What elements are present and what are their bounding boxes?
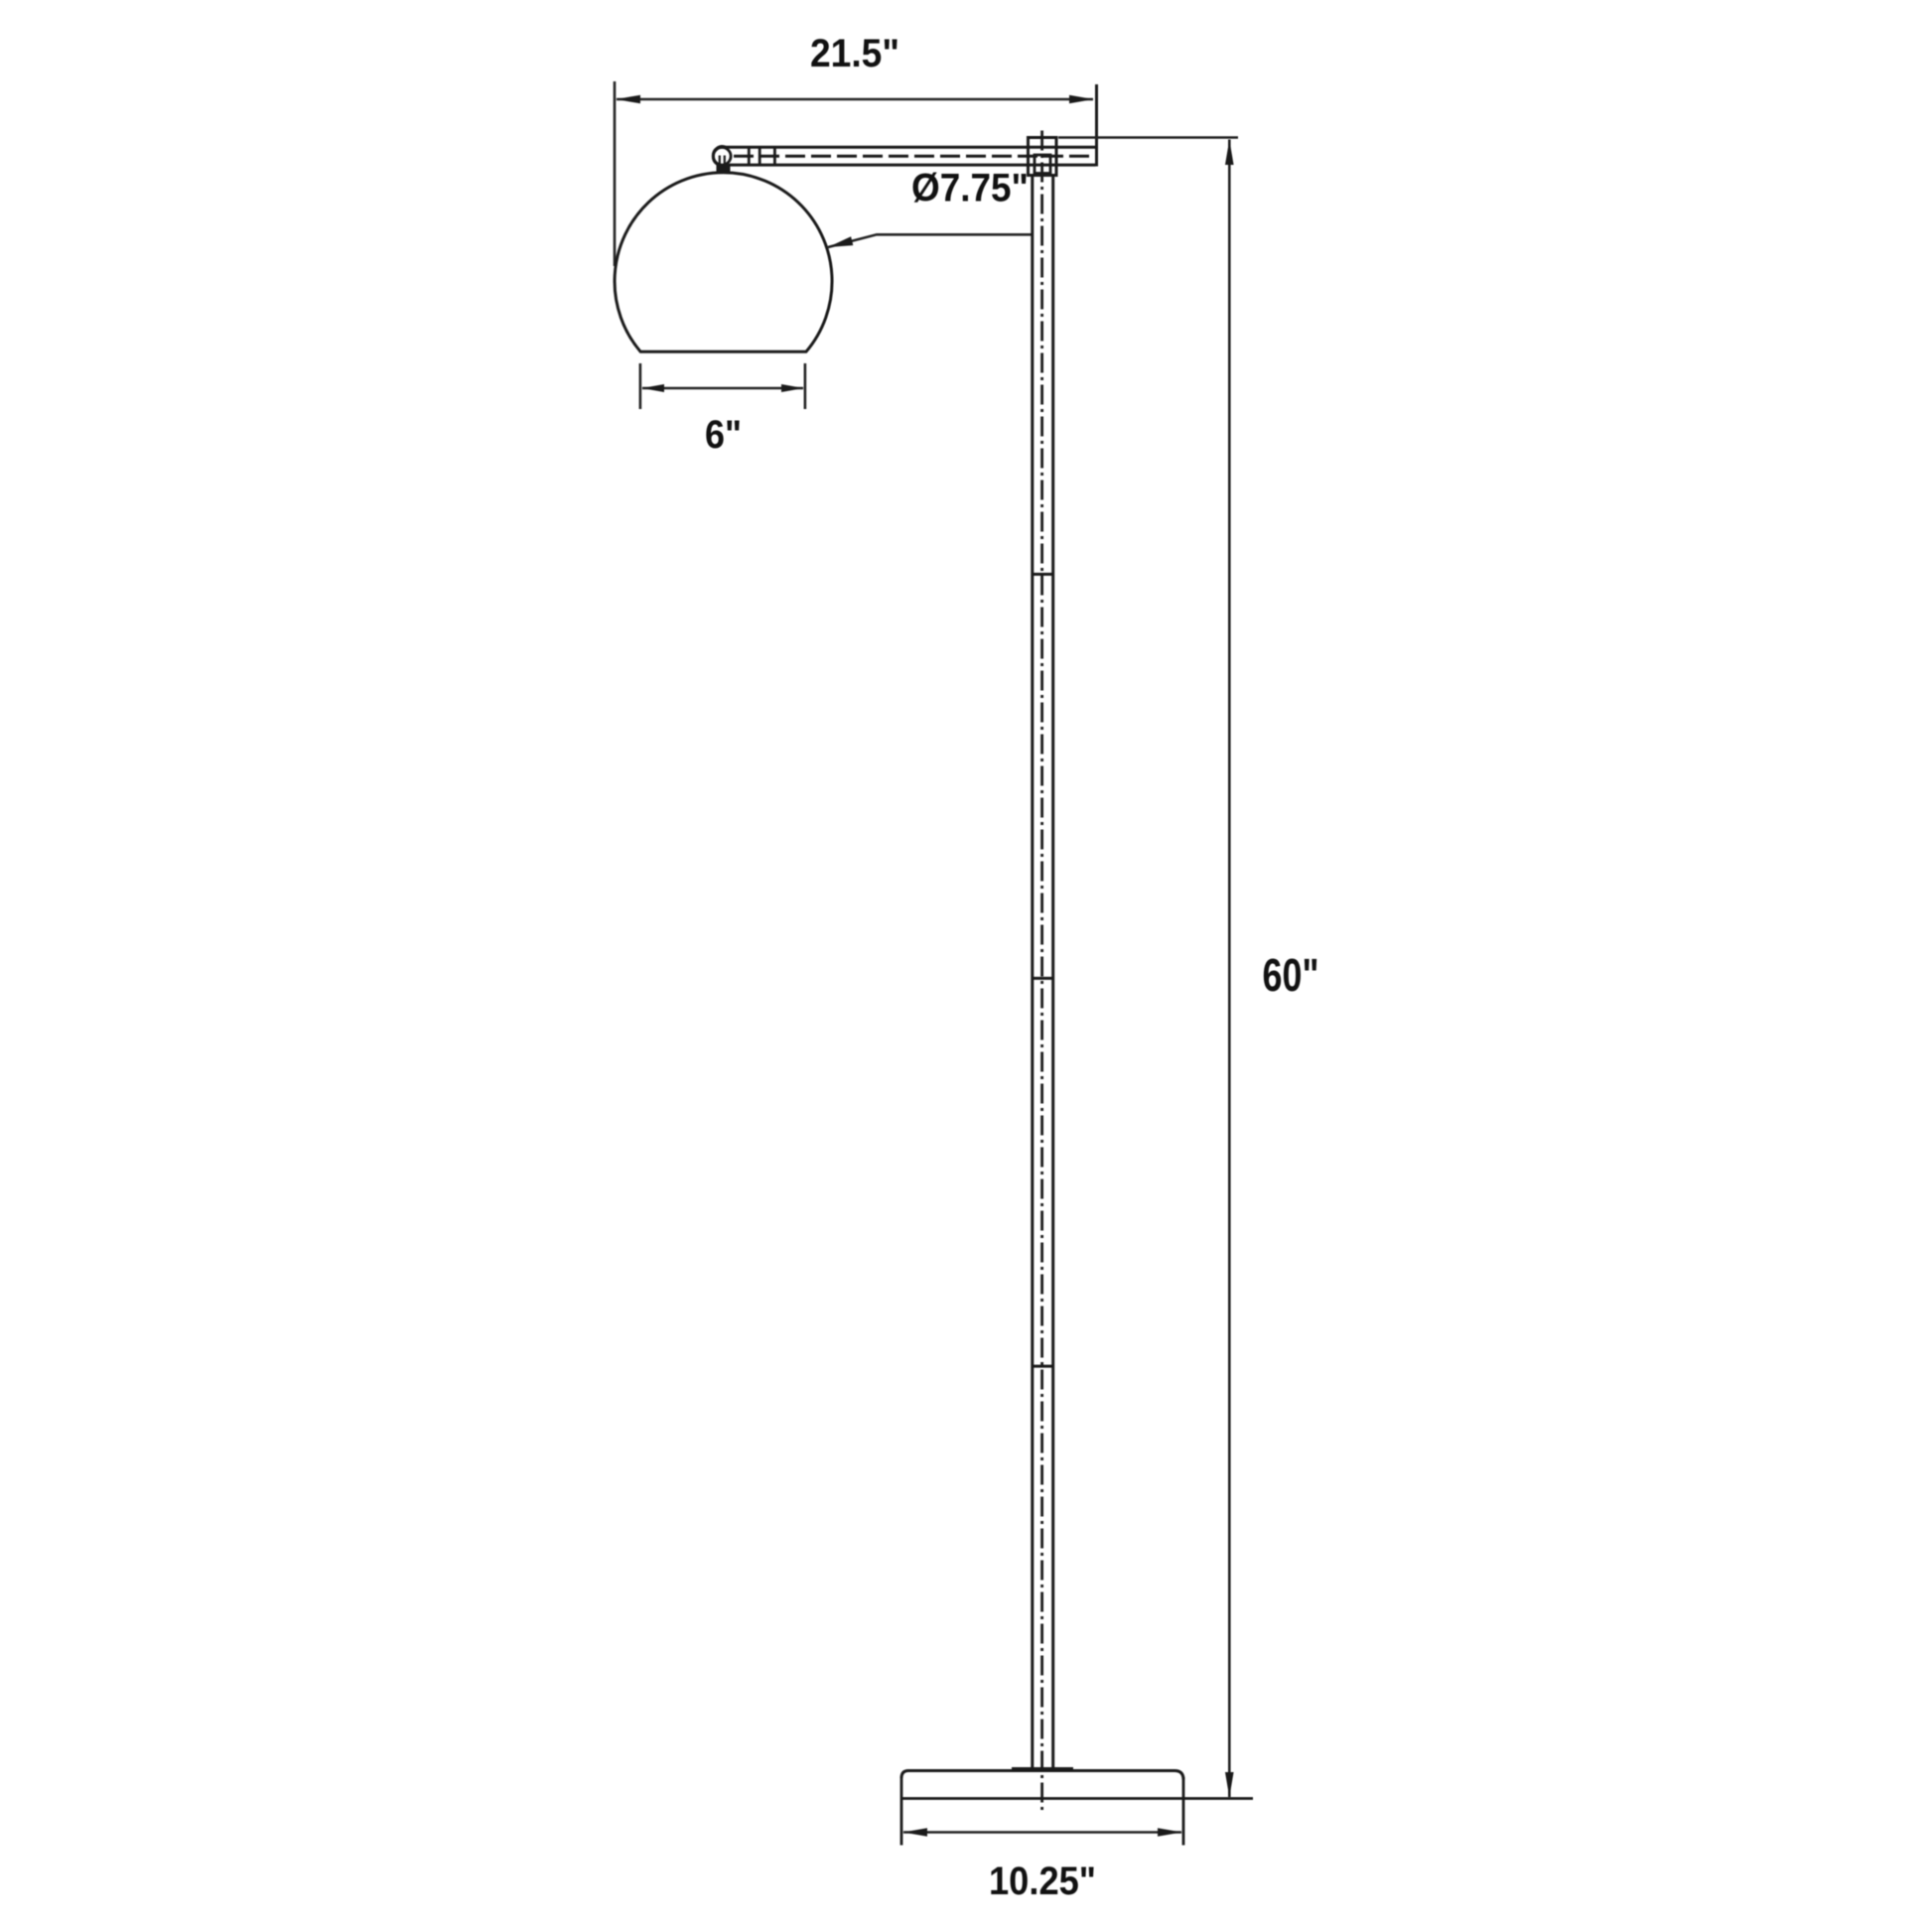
svg-text:21.5": 21.5" [810,32,899,75]
svg-text:10.25": 10.25" [989,1860,1096,1903]
svg-text:Ø7.75": Ø7.75" [911,167,1029,210]
svg-text:6": 6" [705,413,742,457]
svg-text:60": 60" [1263,949,1319,1001]
